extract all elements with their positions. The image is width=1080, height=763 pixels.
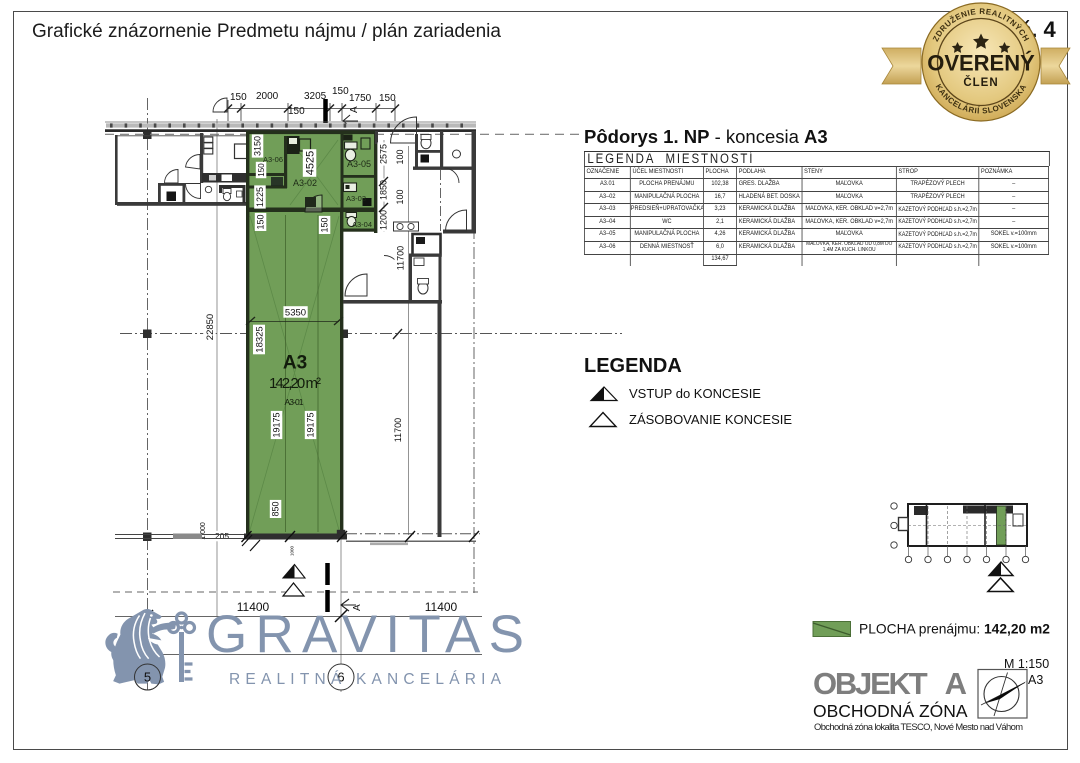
svg-text:A3-04: A3-04 [352,220,372,229]
svg-text:2000: 2000 [256,91,279,102]
svg-text:4525: 4525 [304,151,316,175]
svg-text:1200: 1200 [379,210,389,230]
svg-text:11700: 11700 [396,246,406,270]
svg-text:A3-03: A3-03 [346,194,366,203]
svg-text:REALITNÁ KANCELÁRIA: REALITNÁ KANCELÁRIA [229,671,502,688]
svg-text:150: 150 [320,217,330,232]
svg-text:150: 150 [230,92,247,103]
svg-text:2575: 2575 [379,144,389,164]
svg-text:142,20 m²: 142,20 m² [269,375,321,392]
svg-text:A3-01: A3-01 [285,397,304,407]
svg-text:19175: 19175 [306,412,316,437]
svg-text:19175: 19175 [272,412,282,437]
svg-text:100: 100 [395,189,405,204]
svg-text:5350: 5350 [285,307,306,318]
svg-text:A3: A3 [1028,673,1043,687]
svg-text:ČLEN: ČLEN [963,76,998,89]
svg-text:150: 150 [288,106,305,117]
svg-text:1850: 1850 [379,180,389,200]
svg-text:A3-06: A3-06 [263,155,283,164]
svg-text:150: 150 [256,214,266,229]
svg-text:5: 5 [144,670,151,685]
svg-text:22850: 22850 [205,314,216,340]
svg-text:A3-02: A3-02 [293,178,317,188]
svg-text:1000: 1000 [290,545,295,556]
svg-text:OBJEKT A: OBJEKT A [813,666,967,701]
svg-text:150: 150 [379,93,396,104]
svg-text:1225: 1225 [255,187,265,207]
svg-text:150: 150 [257,163,266,177]
svg-text:Obchodná zóna lokalita TESCO,: Obchodná zóna lokalita TESCO, Nové Mesto… [814,721,1023,732]
svg-text:205: 205 [215,531,229,541]
svg-text:A: A [349,106,360,113]
svg-text:PLOCHA prenájmu: 142,20 m2: PLOCHA prenájmu: 142,20 m2 [859,622,1050,637]
svg-text:850: 850 [271,501,281,516]
svg-text:11700: 11700 [393,418,403,442]
svg-text:OVERENÝ: OVERENÝ [927,51,1035,76]
svg-text:1750: 1750 [349,93,372,104]
svg-text:100: 100 [395,149,405,164]
svg-text:150: 150 [332,86,349,97]
svg-text:OBCHODNÁ ZÓNA: OBCHODNÁ ZÓNA [813,700,968,721]
svg-text:A3: A3 [283,353,307,374]
svg-text:18325: 18325 [254,326,265,352]
svg-text:3150: 3150 [253,136,263,156]
svg-text:A3-05: A3-05 [347,159,371,169]
